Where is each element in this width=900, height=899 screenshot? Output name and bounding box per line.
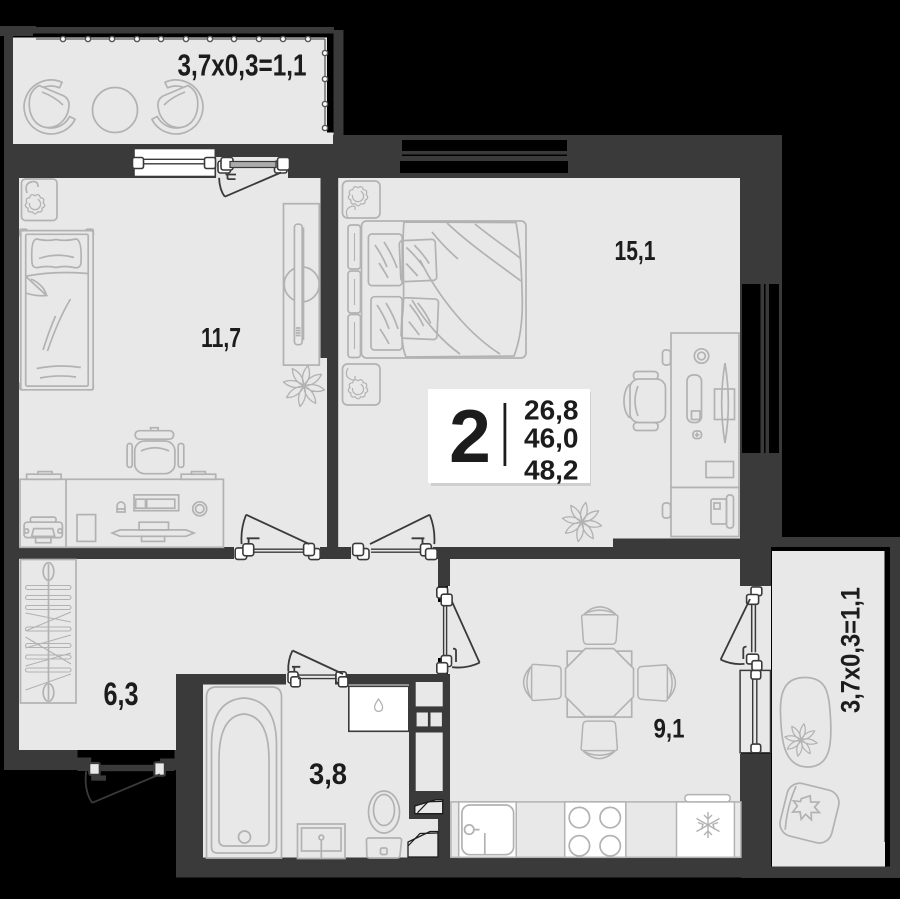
svg-text:48,2: 48,2	[524, 455, 579, 486]
svg-text:3,7x0,3=1,1: 3,7x0,3=1,1	[836, 587, 866, 713]
svg-text:3,8: 3,8	[309, 758, 347, 791]
svg-text:15,1: 15,1	[615, 235, 656, 266]
svg-text:46,0: 46,0	[524, 423, 579, 454]
svg-text:26,8: 26,8	[524, 395, 579, 426]
svg-text:2: 2	[449, 394, 491, 478]
svg-text:3,7x0,3=1,1: 3,7x0,3=1,1	[178, 48, 307, 83]
svg-text:11,7: 11,7	[201, 322, 241, 353]
svg-text:9,1: 9,1	[654, 714, 685, 744]
svg-text:6,3: 6,3	[104, 676, 139, 712]
